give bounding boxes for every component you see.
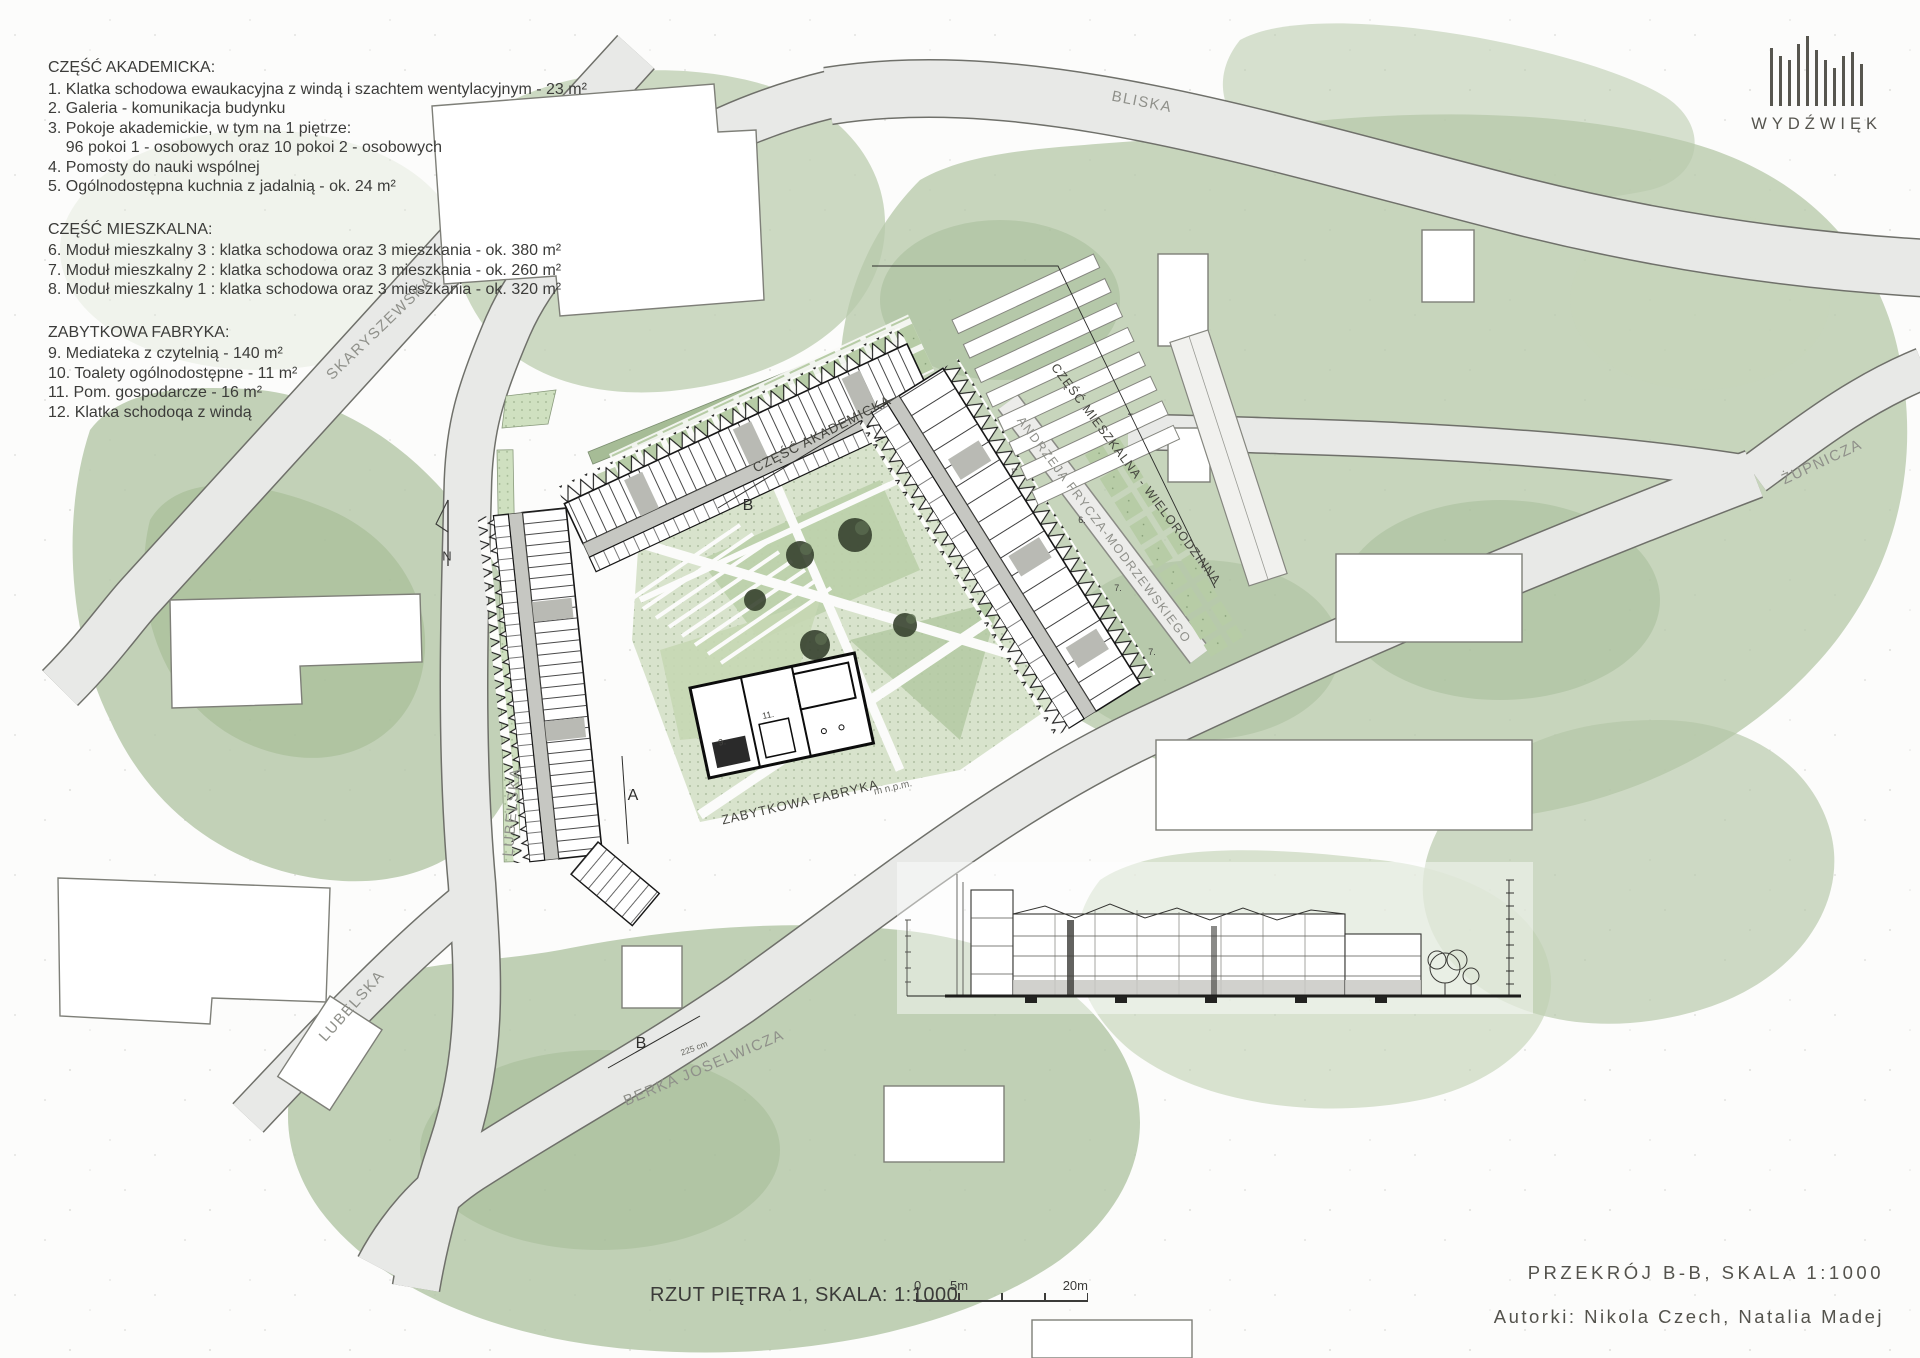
plan-title: RZUT PIĘTRA 1, SKALA: 1:1000 xyxy=(650,1284,958,1307)
legend-section-residential: CZĘŚĆ MIESZKALNA: 6. Moduł mieszkalny 3 … xyxy=(48,220,668,300)
legend-item: 8. Moduł mieszkalny 1 : klatka schodowa … xyxy=(48,280,668,300)
unit-label-7a: 7. xyxy=(1114,583,1122,593)
logo-bars-icon xyxy=(1770,36,1863,106)
legend-item: 12. Klatka schodoqa z windą xyxy=(48,403,668,423)
legend-title: CZĘŚĆ MIESZKALNA: xyxy=(48,220,668,240)
section-marker-b-top: B xyxy=(743,497,754,515)
legend-item: 96 pokoi 1 - osobowych oraz 10 pokoi 2 -… xyxy=(48,138,668,158)
legend-section-academic: CZĘŚĆ AKADEMICKA: 1. Klatka schodowa ewa… xyxy=(48,58,668,197)
studio-logo: WYDŹWIĘK xyxy=(1751,36,1882,134)
legend-item: 11. Pom. gospodarcze - 16 m² xyxy=(48,383,668,403)
legend-item: 1. Klatka schodowa ewaukacyjna z windą i… xyxy=(48,80,668,100)
legend-item: 2. Galeria - komunikacja budynku xyxy=(48,99,668,119)
unit-label-7b: 7. xyxy=(1148,647,1156,657)
section-marker-a: A xyxy=(628,787,639,805)
legend-title: CZĘŚĆ AKADEMICKA: xyxy=(48,58,668,78)
section-title: PRZEKRÓJ B-B, SKALA 1:1000 xyxy=(1528,1262,1884,1284)
presentation-board: CZĘŚĆ AKADEMICKA: 1. Klatka schodowa ewa… xyxy=(0,0,1920,1358)
scale-label-0: 0 xyxy=(914,1278,921,1293)
legend: CZĘŚĆ AKADEMICKA: 1. Klatka schodowa ewa… xyxy=(48,58,668,445)
legend-item: 6. Moduł mieszkalny 3 : klatka schodowa … xyxy=(48,241,668,261)
section-drawing xyxy=(897,862,1533,1014)
north-label: N xyxy=(442,549,451,564)
legend-item: 3. Pokoje akademickie, w tym na 1 piętrz… xyxy=(48,119,668,139)
legend-item: 5. Ogólnodostępna kuchnia z jadalnią - o… xyxy=(48,177,668,197)
authors-credit: Autorki: Nikola Czech, Natalia Madej xyxy=(1494,1306,1884,1328)
scale-label-20m: 20m xyxy=(1063,1278,1088,1293)
legend-item: 10. Toalety ogólnodostępne - 11 m² xyxy=(48,364,668,384)
legend-item: 4. Pomosty do nauki wspólnej xyxy=(48,158,668,178)
scale-bar: 0 5m 20m xyxy=(916,1278,1088,1308)
logo-text: WYDŹWIĘK xyxy=(1751,115,1882,134)
unit-label-6: 6. xyxy=(1078,515,1086,525)
legend-item: 7. Moduł mieszkalny 2 : klatka schodowa … xyxy=(48,261,668,281)
scale-label-5m: 5m xyxy=(950,1278,968,1293)
section-marker-b-bottom: B xyxy=(636,1035,647,1053)
